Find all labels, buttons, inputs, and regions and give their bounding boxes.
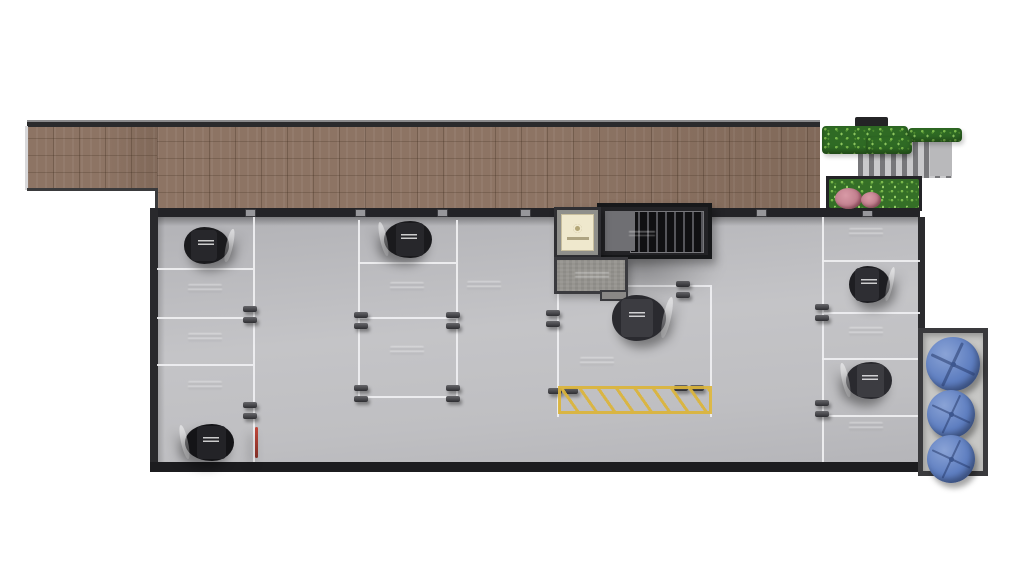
- deck-side-panel: [930, 140, 952, 176]
- wall-bracket: [355, 209, 366, 217]
- car-roof-label-mark: [862, 375, 878, 382]
- hedge-planter: [908, 128, 962, 142]
- hedge-planter: [866, 136, 912, 154]
- pink-flower-cluster: [835, 188, 862, 209]
- bay-number-mark: [390, 346, 424, 355]
- car: [827, 262, 913, 307]
- parking-lane-line: [358, 396, 456, 398]
- bay-number-mark: [390, 282, 424, 291]
- wheel-stop: [446, 396, 460, 402]
- bay-number-mark: [188, 381, 222, 390]
- wheel-stop: [243, 306, 257, 312]
- garage-floor: [157, 217, 920, 462]
- wheel-stop: [243, 413, 257, 419]
- car: [357, 217, 457, 262]
- garage-top-wall: [157, 208, 920, 217]
- elevator-shaft: [554, 207, 601, 258]
- bay-number-mark: [467, 281, 501, 290]
- wheel-stop: [243, 402, 257, 408]
- bay-number-mark: [580, 357, 614, 366]
- wheel-stop: [243, 317, 257, 323]
- parking-lane-line: [358, 262, 456, 264]
- wheel-stop: [546, 321, 560, 327]
- car-roof-label-mark: [203, 437, 219, 444]
- wheel-stop: [446, 323, 460, 329]
- water-tank: [926, 337, 980, 391]
- floorplan-canvas: [0, 0, 1024, 576]
- wheel-stop: [815, 411, 829, 417]
- car: [157, 420, 260, 465]
- brand-text-mark: [567, 237, 589, 240]
- bay-number-mark: [188, 333, 222, 342]
- wheel-stop: [446, 385, 460, 391]
- parking-lane-line: [157, 268, 253, 270]
- wheel-stop: [815, 304, 829, 310]
- wall-bracket: [437, 209, 448, 217]
- bay-number-mark: [849, 228, 883, 237]
- driveway-bottom-edge: [27, 188, 157, 191]
- driveway-top-wall: [27, 120, 820, 127]
- tank-lid-cap: [949, 457, 954, 462]
- tank-lid-cap: [949, 412, 954, 417]
- parking-lane-line: [822, 312, 920, 314]
- wheel-stop: [446, 312, 460, 318]
- parking-lane-line: [157, 317, 253, 319]
- water-tank: [927, 390, 975, 438]
- car: [160, 224, 254, 267]
- pink-flower-cluster: [861, 192, 881, 208]
- parking-lane-line: [157, 364, 253, 366]
- flower-planter-box: [826, 176, 922, 211]
- brand-logo-icon: [573, 224, 582, 233]
- car-roof-label-mark: [198, 240, 214, 247]
- stairwell: [597, 203, 712, 259]
- driveway-paving: [157, 126, 820, 210]
- water-tank: [927, 435, 975, 483]
- bay-number-mark: [849, 327, 883, 336]
- wall-bracket: [245, 209, 256, 217]
- bay-number-mark: [849, 422, 883, 431]
- car-roof-label-mark: [401, 234, 417, 241]
- stair-label-mark: [629, 231, 655, 236]
- driveway-paving-left: [27, 126, 157, 190]
- wheel-stop: [354, 396, 368, 402]
- driveway-left-edge: [25, 126, 28, 190]
- bay-number-mark: [188, 284, 222, 293]
- car: [584, 291, 697, 345]
- planter-shrubs: [829, 179, 919, 208]
- wheel-stop: [354, 385, 368, 391]
- elevator-cab-plaque: [561, 214, 594, 251]
- wheel-stop: [546, 310, 560, 316]
- parking-lane-line: [822, 217, 824, 462]
- wheel-stop: [815, 315, 829, 321]
- service-room-label-mark: [575, 272, 609, 280]
- wall-bracket: [520, 209, 531, 217]
- wheel-stop: [354, 312, 368, 318]
- car-roof-label-mark: [861, 279, 877, 286]
- wall-bracket: [756, 209, 767, 217]
- parking-lane-line: [358, 317, 456, 319]
- service-room: [554, 257, 628, 294]
- car-roof-label-mark: [629, 312, 645, 319]
- car: [820, 358, 916, 403]
- car-taillight: [255, 427, 258, 459]
- no-parking-hatch-zone: [558, 386, 712, 414]
- wheel-stop: [354, 323, 368, 329]
- garage-bottom-wall: [150, 462, 927, 472]
- parking-lane-line: [822, 415, 920, 417]
